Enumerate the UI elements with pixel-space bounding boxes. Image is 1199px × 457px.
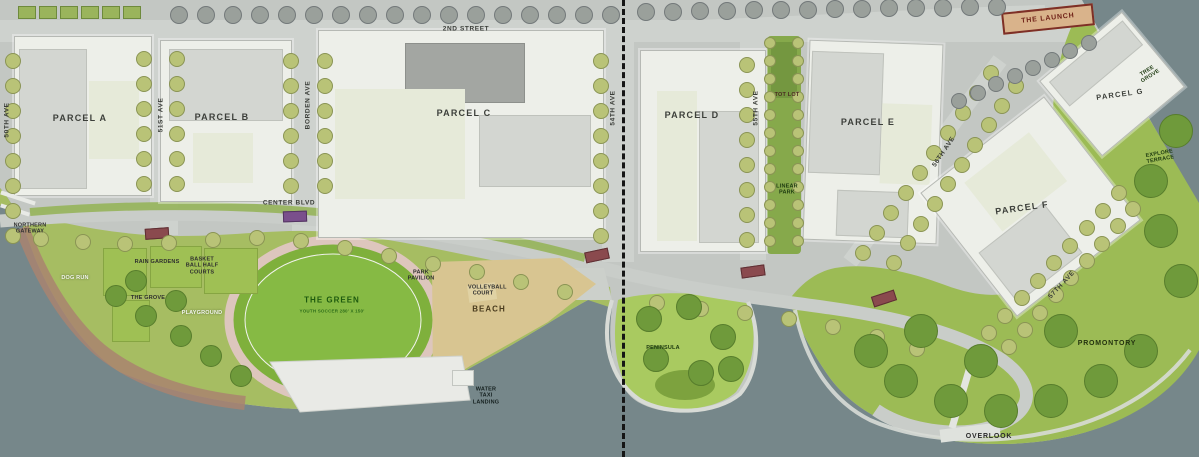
street-tree-icon — [161, 235, 177, 251]
street-tree-icon — [764, 145, 776, 157]
forest-tree-icon — [1044, 314, 1078, 348]
water-taxi-float — [452, 370, 474, 386]
feature-label-water-taxi-landing: WATER TAXI LANDING — [471, 387, 501, 406]
street-tree-icon — [1007, 68, 1023, 84]
street-tree-icon — [739, 182, 755, 198]
forest-tree-icon — [1084, 364, 1118, 398]
planting-bed-marker — [283, 211, 307, 223]
street-tree-icon — [792, 37, 804, 49]
street-tree-icon — [317, 128, 333, 144]
hedge-row — [123, 6, 141, 19]
street-tree-icon — [251, 6, 269, 24]
street-label-55th-ave: 55TH AVE — [752, 90, 759, 125]
street-tree-icon — [764, 127, 776, 139]
street-tree-icon — [739, 157, 755, 173]
street-tree-icon — [5, 53, 21, 69]
street-tree-icon — [75, 234, 91, 250]
parcel-b-building — [169, 49, 283, 121]
street-tree-icon — [1095, 203, 1111, 219]
feature-label-overlook: OVERLOOK — [966, 433, 1012, 441]
street-tree-icon — [593, 103, 609, 119]
street-tree-icon — [1001, 339, 1017, 355]
forest-tree-icon — [125, 270, 147, 292]
street-tree-icon — [853, 0, 871, 18]
street-tree-icon — [637, 3, 655, 21]
street-label-50th-ave: 50TH AVE — [3, 102, 10, 137]
street-tree-icon — [970, 85, 986, 101]
parcel-label-a: PARCEL A — [53, 113, 107, 123]
street-tree-icon — [5, 203, 21, 219]
street-tree-icon — [691, 2, 709, 20]
parcel-c-building — [479, 115, 591, 187]
street-tree-icon — [792, 235, 804, 247]
street-tree-icon — [593, 153, 609, 169]
street-tree-icon — [764, 199, 776, 211]
forest-tree-icon — [688, 360, 714, 386]
forest-tree-icon — [1144, 214, 1178, 248]
street-tree-icon — [169, 151, 185, 167]
hedge-row — [39, 6, 57, 19]
street-tree-icon — [913, 216, 929, 232]
street-tree-icon — [792, 163, 804, 175]
feature-label-park-pavilion: PARK PAVILION — [406, 270, 436, 283]
street-tree-icon — [737, 305, 753, 321]
feature-label-the-grove: THE GROVE — [131, 295, 165, 301]
street-tree-icon — [283, 103, 299, 119]
street-tree-icon — [792, 127, 804, 139]
forest-tree-icon — [230, 365, 252, 387]
street-tree-icon — [283, 153, 299, 169]
street-tree-icon — [792, 55, 804, 67]
street-tree-icon — [1017, 322, 1033, 338]
feature-label-peninsula: PENINSULA — [646, 345, 680, 351]
forest-tree-icon — [964, 344, 998, 378]
street-tree-icon — [332, 6, 350, 24]
street-tree-icon — [136, 151, 152, 167]
street-label-center-blvd: CENTER BLVD — [263, 199, 315, 206]
street-tree-icon — [826, 0, 844, 18]
street-label-2nd-street: 2ND STREET — [443, 25, 489, 32]
forest-tree-icon — [904, 314, 938, 348]
feature-label-dog-run: DOG RUN — [61, 275, 88, 281]
tot-lot-area — [771, 42, 797, 98]
street-tree-icon — [317, 103, 333, 119]
street-tree-icon — [825, 319, 841, 335]
street-tree-icon — [136, 51, 152, 67]
forest-tree-icon — [165, 290, 187, 312]
street-tree-icon — [792, 73, 804, 85]
street-tree-icon — [170, 6, 188, 24]
street-tree-icon — [467, 6, 485, 24]
street-label-54th-ave: 54TH AVE — [609, 90, 616, 125]
parcel-label-b: PARCEL B — [195, 112, 250, 122]
feature-label-volleyball-court: VOLLEYBALL COURT — [468, 285, 498, 298]
street-tree-icon — [1062, 238, 1078, 254]
street-tree-icon — [5, 153, 21, 169]
parcel-e-building — [808, 51, 884, 175]
feature-label-playground: PLAYGROUND — [182, 310, 223, 316]
hedge-row — [102, 6, 120, 19]
phase-boundary-dashed-line — [622, 0, 625, 457]
hedge-row — [60, 6, 78, 19]
street-tree-icon — [927, 196, 943, 212]
street-tree-icon — [1111, 185, 1127, 201]
street-tree-icon — [781, 311, 797, 327]
street-tree-icon — [5, 178, 21, 194]
street-tree-icon — [855, 245, 871, 261]
forest-tree-icon — [676, 294, 702, 320]
street-tree-icon — [1079, 253, 1095, 269]
street-tree-icon — [764, 235, 776, 247]
street-tree-icon — [317, 53, 333, 69]
street-tree-icon — [283, 178, 299, 194]
street-tree-icon — [359, 6, 377, 24]
street-tree-icon — [764, 37, 776, 49]
street-tree-icon — [1030, 273, 1046, 289]
street-tree-icon — [413, 6, 431, 24]
street-tree-icon — [602, 6, 620, 24]
parcel-e-block — [803, 40, 944, 245]
street-tree-icon — [739, 132, 755, 148]
street-tree-icon — [898, 185, 914, 201]
parcel-b-courtyard — [193, 133, 253, 183]
feature-label-the-launch: THE LAUNCH — [1021, 12, 1075, 26]
street-tree-icon — [900, 235, 916, 251]
forest-tree-icon — [984, 394, 1018, 428]
parcel-c-courtyard — [335, 89, 465, 199]
street-tree-icon — [386, 6, 404, 24]
site-plan-map: THE LAUNCH 2ND STREET CENTER BLVD 50TH A… — [0, 0, 1199, 457]
street-tree-icon — [337, 240, 353, 256]
street-tree-icon — [197, 6, 215, 24]
street-tree-icon — [521, 6, 539, 24]
street-tree-icon — [593, 128, 609, 144]
street-tree-icon — [224, 6, 242, 24]
forest-tree-icon — [135, 305, 157, 327]
street-tree-icon — [886, 255, 902, 271]
street-tree-icon — [136, 126, 152, 142]
street-tree-icon — [951, 93, 967, 109]
street-tree-icon — [764, 217, 776, 229]
street-tree-icon — [764, 55, 776, 67]
forest-tree-icon — [1034, 384, 1068, 418]
feature-label-northern-gateway: NORTHERN GATEWAY — [7, 223, 53, 236]
street-tree-icon — [739, 57, 755, 73]
forest-tree-icon — [105, 285, 127, 307]
feature-label-rain-gardens: RAIN GARDENS — [135, 259, 180, 265]
street-tree-icon — [5, 78, 21, 94]
street-tree-icon — [997, 308, 1013, 324]
forest-tree-icon — [1134, 164, 1168, 198]
street-tree-icon — [317, 178, 333, 194]
forest-tree-icon — [170, 325, 192, 347]
street-tree-icon — [593, 203, 609, 219]
street-tree-icon — [283, 128, 299, 144]
street-tree-icon — [593, 178, 609, 194]
feature-label-linear-park: LINEAR PARK — [772, 184, 802, 197]
street-tree-icon — [1032, 305, 1048, 321]
street-tree-icon — [381, 248, 397, 264]
street-tree-icon — [169, 101, 185, 117]
street-label-51st-ave: 51ST AVE — [157, 98, 164, 133]
street-tree-icon — [792, 145, 804, 157]
street-tree-icon — [1081, 35, 1097, 51]
street-tree-icon — [169, 126, 185, 142]
street-tree-icon — [792, 109, 804, 121]
hedge-row — [81, 6, 99, 19]
forest-tree-icon — [884, 364, 918, 398]
street-tree-icon — [136, 101, 152, 117]
street-label-borden-ave: BORDEN AVE — [304, 81, 311, 130]
street-tree-icon — [469, 264, 485, 280]
street-tree-icon — [912, 165, 928, 181]
street-tree-icon — [792, 199, 804, 211]
street-tree-icon — [283, 78, 299, 94]
forest-tree-icon — [854, 334, 888, 368]
street-tree-icon — [293, 233, 309, 249]
street-tree-icon — [764, 73, 776, 85]
feature-label-tot-lot: TOT LOT — [775, 92, 800, 98]
street-tree-icon — [954, 157, 970, 173]
hedge-row — [18, 6, 36, 19]
street-tree-icon — [593, 78, 609, 94]
street-tree-icon — [136, 176, 152, 192]
street-tree-icon — [772, 1, 790, 19]
street-tree-icon — [593, 228, 609, 244]
street-tree-icon — [1014, 290, 1030, 306]
street-tree-icon — [994, 98, 1010, 114]
parcel-label-e: PARCEL E — [841, 117, 895, 127]
street-tree-icon — [205, 232, 221, 248]
feature-label-beach: BEACH — [472, 304, 505, 313]
street-tree-icon — [117, 236, 133, 252]
street-tree-icon — [764, 163, 776, 175]
street-tree-icon — [513, 274, 529, 290]
street-tree-icon — [283, 53, 299, 69]
forest-tree-icon — [718, 356, 744, 382]
feature-label-basketball-half-courts: BASKET BALL HALF COURTS — [182, 257, 222, 276]
street-tree-icon — [548, 6, 566, 24]
parcel-label-d: PARCEL D — [665, 110, 720, 120]
street-tree-icon — [1044, 52, 1060, 68]
street-tree-icon — [664, 3, 682, 21]
street-tree-icon — [593, 53, 609, 69]
forest-tree-icon — [1159, 114, 1193, 148]
street-tree-icon — [169, 76, 185, 92]
forest-tree-icon — [200, 345, 222, 367]
street-tree-icon — [278, 6, 296, 24]
street-tree-icon — [317, 78, 333, 94]
forest-tree-icon — [934, 384, 968, 418]
forest-tree-icon — [1164, 264, 1198, 298]
street-tree-icon — [305, 6, 323, 24]
street-tree-icon — [1110, 218, 1126, 234]
forest-tree-icon — [636, 306, 662, 332]
street-tree-icon — [1046, 255, 1062, 271]
street-tree-icon — [1079, 220, 1095, 236]
street-tree-icon — [764, 109, 776, 121]
parcel-d-building — [699, 111, 759, 243]
street-tree-icon — [169, 51, 185, 67]
feature-label-promontory: PROMONTORY — [1078, 340, 1137, 348]
street-tree-icon — [745, 1, 763, 19]
street-tree-icon — [169, 176, 185, 192]
street-tree-icon — [792, 217, 804, 229]
parcel-label-c: PARCEL C — [437, 108, 492, 118]
street-tree-icon — [1125, 201, 1141, 217]
street-tree-icon — [575, 6, 593, 24]
street-tree-icon — [494, 6, 512, 24]
street-tree-icon — [249, 230, 265, 246]
parcel-c-block — [318, 30, 604, 238]
street-tree-icon — [799, 1, 817, 19]
street-tree-icon — [739, 207, 755, 223]
feature-label-the-green-subtitle: YOUTH SOCCER 280' X 150' — [300, 308, 365, 313]
street-tree-icon — [317, 153, 333, 169]
street-tree-icon — [739, 232, 755, 248]
street-tree-icon — [136, 76, 152, 92]
feature-label-the-green: THE GREEN — [304, 295, 360, 304]
forest-tree-icon — [710, 324, 736, 350]
street-tree-icon — [1094, 236, 1110, 252]
street-tree-icon — [981, 325, 997, 341]
street-tree-icon — [557, 284, 573, 300]
street-tree-icon — [718, 2, 736, 20]
street-tree-icon — [440, 6, 458, 24]
